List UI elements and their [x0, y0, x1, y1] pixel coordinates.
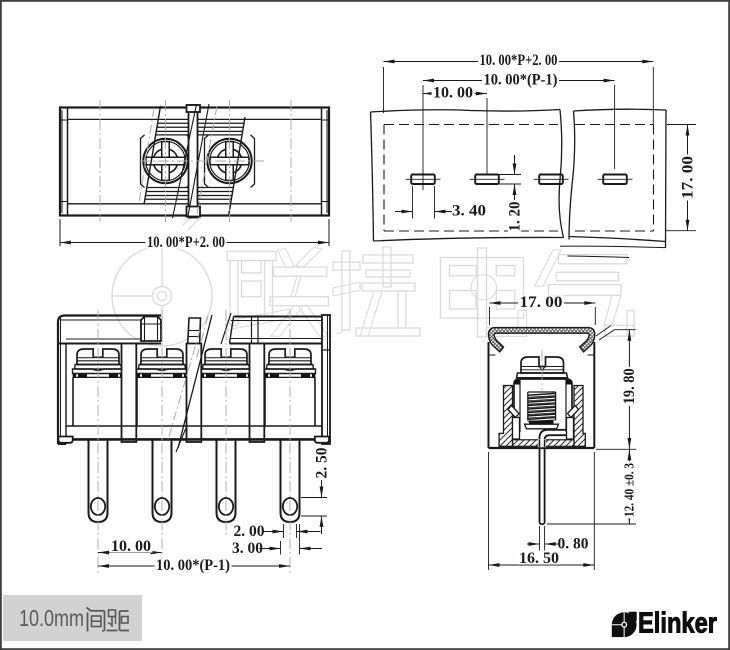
svg-text:17. 00: 17. 00 — [680, 156, 697, 199]
svg-text:2. 50: 2. 50 — [314, 447, 331, 478]
svg-text:2. 00: 2. 00 — [234, 523, 265, 540]
svg-text:10. 00: 10. 00 — [433, 84, 473, 101]
svg-text:1. 20: 1. 20 — [507, 201, 524, 231]
svg-text:12. 40 ±0. 3: 12. 40 ±0. 3 — [621, 463, 636, 517]
svg-text:10.0mm: 10.0mm — [19, 605, 84, 631]
svg-text:10. 00: 10. 00 — [111, 538, 151, 555]
svg-text:16. 50: 16. 50 — [519, 550, 559, 567]
svg-text:10. 00*P+2. 00: 10. 00*P+2. 00 — [480, 52, 558, 69]
svg-text:17. 00: 17. 00 — [520, 294, 563, 311]
svg-text:10. 00*(P-1): 10. 00*(P-1) — [484, 71, 558, 88]
svg-text:10. 00*(P-1): 10. 00*(P-1) — [156, 557, 230, 574]
svg-text:10. 00*P+2. 00: 10. 00*P+2. 00 — [147, 234, 225, 251]
svg-text:3. 00: 3. 00 — [232, 540, 263, 557]
svg-text:0. 80: 0. 80 — [558, 536, 589, 553]
svg-text:3. 40: 3. 40 — [452, 203, 486, 220]
svg-text:Elinker: Elinker — [638, 608, 717, 640]
svg-text:19. 80: 19. 80 — [621, 368, 638, 404]
